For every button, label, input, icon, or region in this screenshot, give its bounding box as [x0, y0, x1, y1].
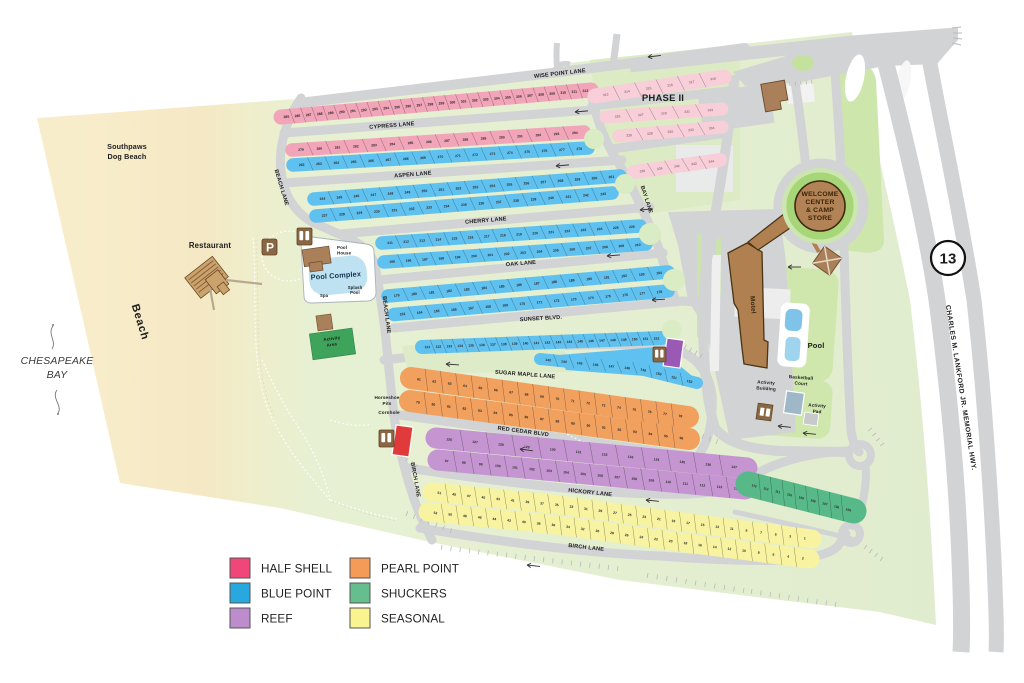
- svg-text:Southpaws: Southpaws: [107, 142, 147, 151]
- svg-text:331: 331: [684, 110, 690, 114]
- svg-text:310: 310: [560, 91, 566, 95]
- svg-text:43: 43: [496, 497, 500, 501]
- svg-text:109: 109: [648, 478, 654, 483]
- svg-text:256: 256: [523, 181, 529, 185]
- svg-text:11: 11: [730, 527, 734, 531]
- svg-text:202: 202: [504, 252, 510, 256]
- svg-text:52: 52: [433, 511, 437, 515]
- svg-text:151: 151: [643, 337, 649, 341]
- svg-text:13: 13: [715, 525, 719, 529]
- svg-text:293: 293: [554, 132, 560, 136]
- svg-text:39: 39: [525, 500, 529, 504]
- svg-text:90: 90: [586, 423, 590, 427]
- svg-text:233: 233: [426, 205, 432, 209]
- svg-text:141: 141: [534, 341, 540, 345]
- svg-text:150: 150: [632, 337, 638, 341]
- svg-text:113: 113: [717, 485, 723, 490]
- svg-text:86: 86: [524, 415, 528, 419]
- svg-text:14: 14: [713, 545, 717, 549]
- svg-text:100: 100: [495, 464, 501, 469]
- svg-text:306: 306: [516, 94, 522, 98]
- svg-text:131: 131: [576, 450, 582, 455]
- svg-text:69: 69: [540, 395, 544, 400]
- svg-text:327: 327: [638, 113, 644, 117]
- svg-text:70: 70: [555, 397, 559, 402]
- svg-text:264: 264: [333, 161, 339, 165]
- svg-text:85: 85: [509, 413, 513, 417]
- svg-text:102: 102: [529, 467, 535, 472]
- svg-text:212: 212: [403, 240, 409, 244]
- svg-text:33: 33: [569, 505, 573, 509]
- svg-text:PHASE II: PHASE II: [642, 93, 684, 104]
- svg-text:67: 67: [509, 390, 513, 395]
- svg-text:62: 62: [432, 379, 436, 384]
- svg-text:254: 254: [489, 184, 495, 188]
- svg-text:194: 194: [656, 271, 662, 275]
- svg-text:192: 192: [621, 274, 627, 278]
- svg-text:315: 315: [646, 86, 652, 91]
- svg-text:42: 42: [507, 518, 511, 522]
- svg-text:143: 143: [555, 340, 561, 344]
- svg-text:285: 285: [283, 115, 289, 119]
- svg-text:CENTER: CENTER: [805, 199, 834, 206]
- svg-text:19: 19: [671, 519, 675, 523]
- svg-text:187: 187: [534, 281, 540, 285]
- svg-text:45: 45: [481, 495, 485, 499]
- svg-text:94: 94: [648, 432, 652, 436]
- svg-text:87: 87: [540, 417, 544, 421]
- svg-text:15: 15: [700, 523, 704, 527]
- svg-text:148: 148: [624, 366, 630, 371]
- svg-text:333: 333: [707, 108, 713, 112]
- svg-text:38: 38: [537, 521, 541, 525]
- svg-text:245: 245: [336, 195, 342, 199]
- svg-text:206: 206: [569, 247, 575, 251]
- svg-text:290: 290: [499, 135, 505, 139]
- svg-text:177: 177: [639, 291, 645, 295]
- svg-text:185: 185: [499, 284, 505, 288]
- svg-text:222: 222: [564, 229, 570, 233]
- svg-text:283: 283: [371, 143, 377, 147]
- svg-text:209: 209: [618, 244, 624, 248]
- svg-text:230: 230: [374, 209, 380, 213]
- svg-text:12: 12: [727, 547, 731, 551]
- svg-text:47: 47: [467, 494, 471, 498]
- svg-text:49: 49: [452, 492, 456, 496]
- svg-text:248: 248: [387, 191, 393, 195]
- svg-text:74: 74: [617, 405, 621, 410]
- svg-text:35: 35: [555, 503, 559, 507]
- svg-text:289: 289: [481, 136, 487, 140]
- svg-text:215: 215: [452, 236, 458, 240]
- svg-text:216: 216: [468, 235, 474, 239]
- svg-text:163: 163: [400, 312, 406, 316]
- svg-text:270: 270: [437, 155, 443, 159]
- svg-text:228: 228: [339, 212, 345, 216]
- svg-text:332: 332: [688, 128, 694, 132]
- svg-text:196: 196: [406, 259, 412, 263]
- svg-text:137: 137: [490, 343, 496, 347]
- svg-text:149: 149: [621, 338, 627, 342]
- svg-text:317: 317: [689, 80, 695, 85]
- svg-text:328: 328: [647, 131, 653, 135]
- svg-text:137: 137: [731, 465, 737, 470]
- svg-text:314: 314: [624, 89, 630, 94]
- svg-text:300: 300: [450, 100, 456, 104]
- svg-text:51: 51: [437, 491, 441, 495]
- svg-text:278: 278: [576, 147, 582, 151]
- svg-text:236: 236: [478, 201, 484, 205]
- svg-text:220: 220: [532, 231, 538, 235]
- svg-text:46: 46: [478, 515, 482, 519]
- svg-text:305: 305: [505, 95, 511, 99]
- svg-text:173: 173: [571, 297, 577, 301]
- svg-text:106: 106: [597, 473, 603, 478]
- svg-text:76: 76: [647, 410, 651, 415]
- svg-text:261: 261: [608, 175, 614, 179]
- svg-text:197: 197: [422, 257, 428, 261]
- svg-text:18: 18: [683, 541, 687, 545]
- svg-text:169: 169: [502, 303, 508, 307]
- svg-text:House: House: [337, 251, 352, 256]
- svg-text:190: 190: [586, 277, 592, 281]
- svg-text:79: 79: [416, 400, 420, 404]
- svg-text:189: 189: [569, 278, 575, 282]
- svg-text:22: 22: [654, 537, 658, 541]
- svg-text:107: 107: [614, 475, 620, 480]
- svg-text:104: 104: [563, 470, 569, 475]
- svg-text:61: 61: [417, 377, 421, 382]
- svg-text:Pad: Pad: [813, 409, 822, 415]
- svg-text:31: 31: [584, 507, 588, 511]
- svg-text:316: 316: [667, 83, 673, 88]
- svg-text:241: 241: [565, 195, 571, 199]
- svg-text:144: 144: [566, 340, 572, 344]
- svg-text:89: 89: [571, 421, 575, 425]
- svg-text:164: 164: [417, 310, 423, 314]
- svg-text:98: 98: [462, 461, 466, 465]
- svg-text:P: P: [266, 241, 274, 255]
- svg-text:HALF SHELL: HALF SHELL: [261, 563, 333, 576]
- svg-text:BAY: BAY: [47, 369, 69, 381]
- svg-text:243: 243: [600, 192, 606, 196]
- svg-text:235: 235: [461, 203, 467, 207]
- svg-text:34: 34: [566, 525, 570, 529]
- svg-text:20: 20: [668, 539, 672, 543]
- svg-text:287: 287: [444, 139, 450, 143]
- svg-text:145: 145: [577, 361, 583, 366]
- svg-text:207: 207: [586, 246, 592, 250]
- svg-text:234: 234: [444, 204, 450, 208]
- svg-text:40: 40: [522, 520, 526, 524]
- svg-text:101: 101: [512, 465, 518, 470]
- svg-text:24: 24: [639, 535, 643, 539]
- svg-text:250: 250: [421, 189, 427, 193]
- svg-text:289: 289: [328, 111, 334, 115]
- svg-text:229: 229: [356, 211, 362, 215]
- svg-text:198: 198: [438, 256, 444, 260]
- svg-text:284: 284: [389, 142, 395, 146]
- svg-text:260: 260: [591, 176, 597, 180]
- svg-text:Dog Beach: Dog Beach: [108, 152, 147, 161]
- svg-text:44: 44: [492, 517, 496, 521]
- svg-text:29: 29: [598, 509, 602, 513]
- svg-text:178: 178: [656, 290, 662, 294]
- svg-text:179: 179: [394, 293, 400, 297]
- svg-text:191: 191: [604, 275, 610, 279]
- svg-text:142: 142: [545, 341, 551, 345]
- svg-text:82: 82: [462, 407, 466, 411]
- svg-text:257: 257: [540, 180, 546, 184]
- svg-text:135: 135: [679, 460, 685, 465]
- svg-text:336: 336: [639, 169, 645, 174]
- svg-text:PEARL POINT: PEARL POINT: [381, 563, 459, 576]
- svg-text:330: 330: [667, 130, 673, 134]
- svg-text:WELCOME: WELCOME: [802, 191, 839, 198]
- svg-text:10: 10: [742, 549, 746, 553]
- svg-text:26: 26: [624, 533, 628, 537]
- svg-text:290: 290: [339, 110, 345, 114]
- svg-text:263: 263: [316, 162, 322, 166]
- svg-text:312: 312: [582, 89, 588, 93]
- svg-text:SEASONAL: SEASONAL: [381, 613, 445, 626]
- svg-text:214: 214: [435, 238, 441, 242]
- svg-text:105: 105: [580, 472, 586, 477]
- svg-text:Cornhole: Cornhole: [378, 410, 400, 415]
- svg-text:148: 148: [610, 338, 616, 342]
- svg-text:223: 223: [581, 228, 587, 232]
- svg-text:221: 221: [548, 230, 554, 234]
- svg-text:275: 275: [524, 150, 530, 154]
- svg-text:167: 167: [468, 306, 474, 310]
- svg-text:77: 77: [663, 412, 667, 417]
- svg-text:193: 193: [639, 272, 645, 276]
- svg-text:217: 217: [484, 234, 490, 238]
- svg-text:244: 244: [319, 197, 325, 201]
- svg-text:99: 99: [479, 462, 483, 466]
- svg-text:292: 292: [535, 133, 541, 137]
- svg-text:308: 308: [538, 92, 544, 96]
- svg-text:204: 204: [537, 250, 543, 254]
- svg-text:147: 147: [608, 364, 614, 369]
- svg-text:318: 318: [710, 77, 716, 82]
- svg-text:Horseshoe: Horseshoe: [374, 395, 399, 400]
- svg-text:298: 298: [427, 102, 433, 106]
- svg-text:242: 242: [583, 193, 589, 197]
- svg-text:287: 287: [306, 113, 312, 117]
- svg-text:303: 303: [483, 97, 489, 101]
- svg-text:146: 146: [592, 363, 598, 368]
- svg-text:285: 285: [408, 141, 414, 145]
- svg-text:296: 296: [405, 104, 411, 108]
- svg-text:Motel: Motel: [748, 296, 756, 314]
- svg-text:294: 294: [383, 106, 389, 110]
- svg-text:23: 23: [642, 515, 646, 519]
- svg-text:201: 201: [487, 253, 493, 257]
- svg-text:304: 304: [494, 96, 500, 100]
- svg-text:84: 84: [493, 411, 497, 415]
- svg-text:136: 136: [705, 462, 711, 467]
- svg-text:Pits: Pits: [382, 401, 391, 406]
- svg-text:325: 325: [615, 114, 621, 118]
- svg-text:259: 259: [574, 177, 580, 181]
- svg-text:174: 174: [588, 296, 594, 300]
- svg-text:295: 295: [394, 105, 400, 109]
- svg-text:134: 134: [653, 457, 659, 462]
- svg-text:262: 262: [299, 163, 305, 167]
- svg-text:135: 135: [468, 343, 474, 347]
- svg-text:103: 103: [546, 469, 552, 474]
- svg-text:Pool: Pool: [350, 290, 360, 295]
- svg-text:334: 334: [709, 126, 715, 130]
- svg-text:286: 286: [295, 114, 301, 118]
- svg-text:271: 271: [455, 154, 461, 158]
- svg-text:68: 68: [524, 392, 528, 397]
- svg-text:Restaurant: Restaurant: [189, 241, 231, 250]
- svg-text:224: 224: [597, 227, 603, 231]
- svg-text:181: 181: [429, 290, 435, 294]
- svg-text:208: 208: [602, 245, 608, 249]
- svg-text:37: 37: [540, 501, 544, 505]
- svg-text:81: 81: [447, 404, 451, 408]
- svg-text:302: 302: [472, 98, 478, 102]
- svg-text:Pool: Pool: [808, 341, 825, 350]
- svg-text:25: 25: [627, 513, 631, 517]
- svg-text:274: 274: [507, 151, 513, 155]
- svg-text:41: 41: [511, 498, 515, 502]
- svg-text:13: 13: [940, 251, 957, 268]
- svg-text:91: 91: [602, 426, 606, 430]
- svg-text:182: 182: [446, 289, 452, 293]
- svg-text:143: 143: [545, 358, 551, 363]
- svg-text:132: 132: [602, 452, 608, 457]
- svg-text:238: 238: [513, 199, 519, 203]
- svg-text:246: 246: [353, 194, 359, 198]
- svg-text:272: 272: [472, 153, 478, 157]
- svg-text:329: 329: [661, 111, 667, 115]
- svg-text:247: 247: [370, 193, 376, 197]
- svg-text:STORE: STORE: [808, 215, 833, 222]
- svg-text:237: 237: [496, 200, 502, 204]
- svg-text:96: 96: [679, 436, 683, 440]
- svg-text:28: 28: [610, 531, 614, 535]
- svg-text:136: 136: [479, 343, 485, 347]
- svg-text:286: 286: [426, 140, 432, 144]
- svg-text:92: 92: [617, 428, 621, 432]
- svg-text:134: 134: [457, 344, 463, 348]
- svg-text:188: 188: [551, 280, 557, 284]
- svg-text:75: 75: [632, 408, 636, 413]
- svg-text:147: 147: [599, 338, 605, 342]
- svg-text:183: 183: [464, 287, 470, 291]
- svg-text:288: 288: [317, 112, 323, 116]
- svg-text:176: 176: [622, 293, 628, 297]
- svg-text:108: 108: [631, 477, 637, 482]
- svg-text:268: 268: [403, 157, 409, 161]
- svg-text:258: 258: [557, 179, 563, 183]
- svg-text:83: 83: [478, 409, 482, 413]
- svg-text:281: 281: [335, 145, 341, 149]
- svg-text:36: 36: [551, 523, 555, 527]
- svg-text:95: 95: [664, 434, 668, 438]
- svg-text:32: 32: [580, 527, 584, 531]
- svg-text:340: 340: [674, 164, 680, 169]
- svg-text:71: 71: [571, 399, 575, 404]
- svg-text:280: 280: [316, 147, 322, 151]
- svg-text:199: 199: [455, 255, 461, 259]
- svg-text:186: 186: [516, 283, 522, 287]
- svg-text:291: 291: [350, 109, 356, 113]
- svg-text:72: 72: [586, 401, 590, 406]
- svg-text:139: 139: [512, 342, 518, 346]
- svg-text:30: 30: [595, 529, 599, 533]
- svg-text:291: 291: [517, 134, 523, 138]
- svg-text:144: 144: [561, 360, 567, 365]
- svg-text:80: 80: [431, 402, 435, 406]
- svg-text:200: 200: [471, 254, 477, 258]
- svg-text:Spa: Spa: [320, 293, 329, 298]
- svg-text:338: 338: [657, 166, 663, 171]
- svg-text:63: 63: [447, 382, 451, 387]
- svg-text:342: 342: [691, 162, 697, 167]
- svg-text:313: 313: [603, 92, 609, 97]
- svg-text:73: 73: [601, 403, 605, 408]
- svg-text:112: 112: [700, 483, 706, 488]
- svg-text:27: 27: [613, 511, 617, 515]
- svg-text:205: 205: [553, 248, 559, 252]
- svg-text:311: 311: [571, 90, 577, 94]
- svg-text:REEF: REEF: [261, 613, 293, 626]
- svg-text:307: 307: [527, 93, 533, 97]
- svg-text:50: 50: [448, 512, 452, 516]
- svg-text:128: 128: [498, 442, 504, 447]
- svg-text:184: 184: [481, 286, 487, 290]
- svg-text:282: 282: [353, 144, 359, 148]
- svg-text:93: 93: [633, 430, 637, 434]
- svg-text:133: 133: [627, 455, 633, 460]
- svg-text:66: 66: [494, 388, 498, 393]
- svg-text:293: 293: [372, 107, 378, 111]
- svg-text:172: 172: [554, 299, 560, 303]
- svg-text:132: 132: [435, 345, 441, 349]
- svg-text:301: 301: [461, 99, 467, 103]
- svg-text:240: 240: [548, 196, 554, 200]
- svg-text:219: 219: [516, 232, 522, 236]
- svg-text:231: 231: [391, 208, 397, 212]
- svg-text:195: 195: [389, 260, 395, 264]
- svg-text:138: 138: [501, 342, 507, 346]
- svg-text:249: 249: [404, 190, 410, 194]
- svg-text:253: 253: [472, 185, 478, 189]
- svg-text:269: 269: [420, 156, 426, 160]
- svg-text:140: 140: [523, 341, 529, 345]
- svg-text:Pool: Pool: [337, 245, 347, 250]
- svg-text:276: 276: [542, 149, 548, 153]
- svg-text:273: 273: [490, 152, 496, 156]
- svg-text:344: 344: [708, 159, 714, 164]
- svg-text:180: 180: [411, 292, 417, 296]
- svg-text:BLUE POINT: BLUE POINT: [261, 588, 332, 601]
- svg-text:297: 297: [416, 103, 422, 107]
- svg-text:168: 168: [485, 305, 491, 309]
- svg-text:CHESAPEAKE: CHESAPEAKE: [21, 355, 95, 367]
- svg-text:127: 127: [472, 440, 478, 445]
- svg-text:288: 288: [462, 138, 468, 142]
- svg-text:265: 265: [351, 160, 357, 164]
- svg-text:210: 210: [635, 243, 641, 247]
- svg-text:145: 145: [577, 339, 583, 343]
- svg-text:Court: Court: [794, 381, 808, 387]
